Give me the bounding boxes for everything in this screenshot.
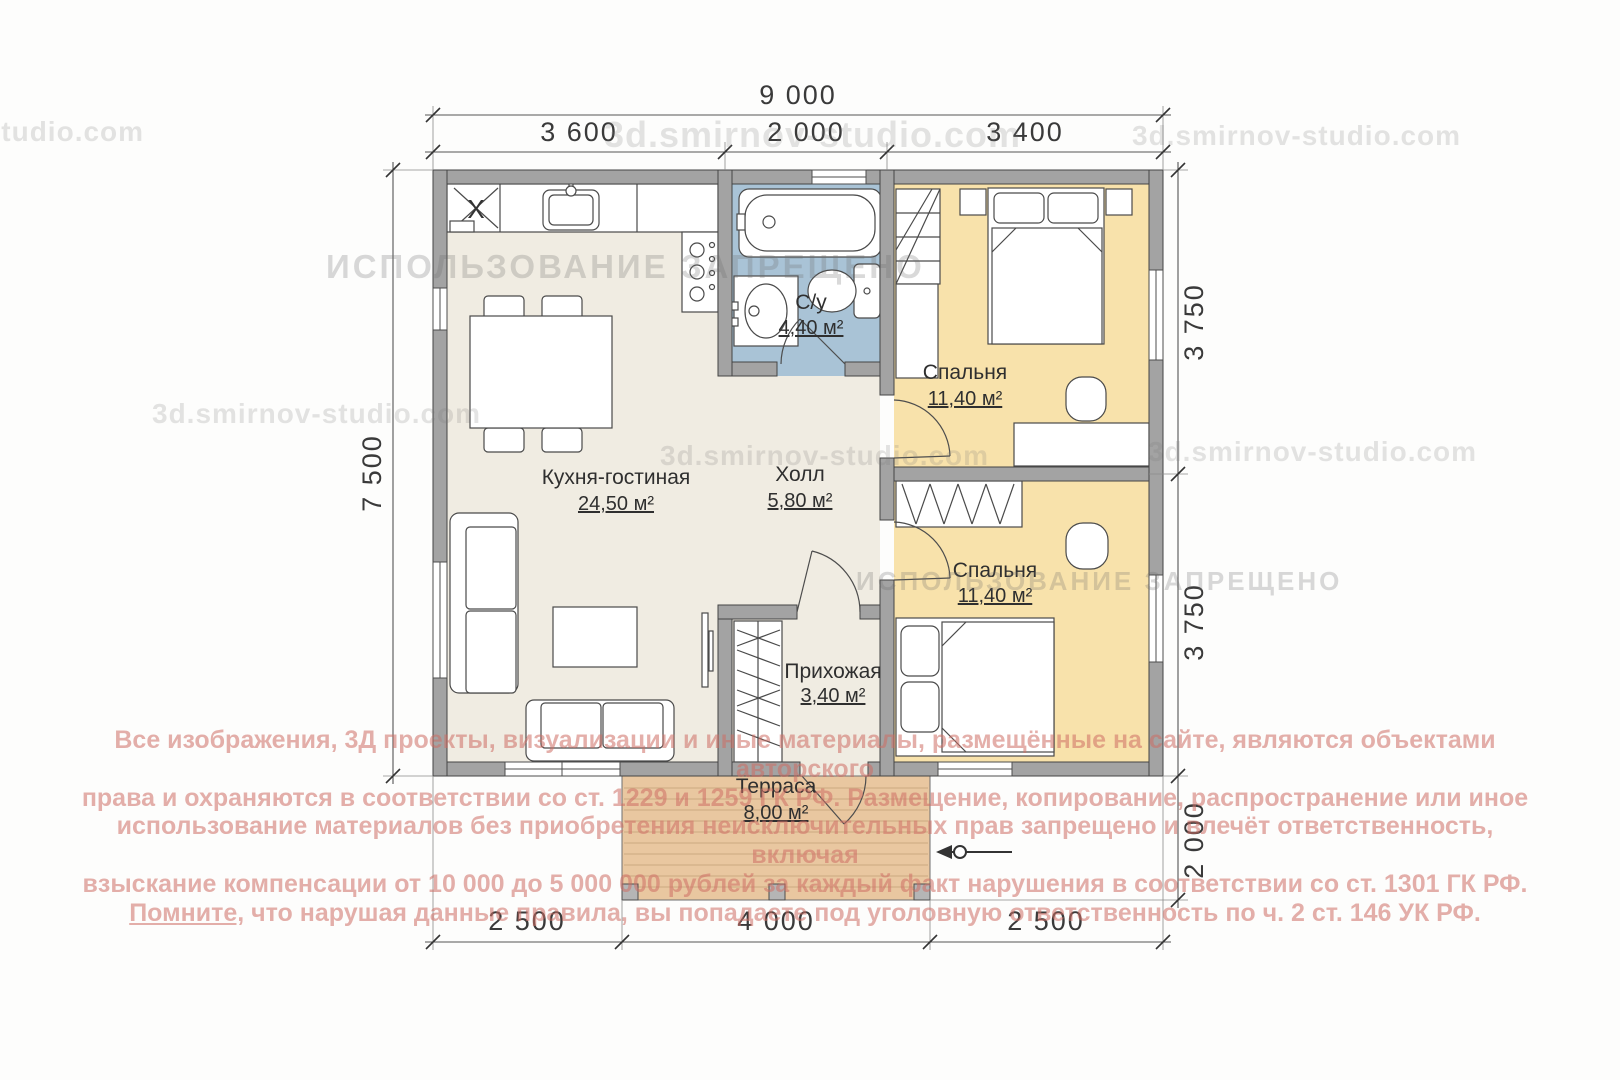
area-kitchen-living: 24,50 м²: [578, 493, 654, 515]
entrance-arrow: [936, 845, 1012, 859]
dim-left-total: 7 500: [357, 434, 387, 512]
kitchen-hob: [682, 232, 718, 312]
nightstand: [1106, 189, 1132, 215]
wall-bedrooms-b: [880, 458, 894, 520]
arrow-head-icon: [936, 845, 952, 859]
label-bedroom2: Спальня: [953, 559, 1037, 582]
wall-bedroom-separator: [894, 467, 1149, 481]
entry-wardrobe: [734, 621, 782, 762]
label-kitchen-living: Кухня-гостиная: [542, 466, 691, 489]
dim-bottom-seg1: 2 500: [488, 906, 566, 936]
bedroom1-wardrobe: [896, 189, 940, 284]
bedroom2-pouf: [1066, 523, 1108, 569]
label-hall: Холл: [775, 463, 825, 486]
area-bedroom1: 11,40 м²: [928, 388, 1003, 410]
wall-top: [433, 170, 1163, 184]
bedroom1-desk: [1014, 423, 1149, 466]
window-top-bathroom: [812, 170, 866, 184]
wall-bath-left: [718, 170, 732, 376]
dim-top-seg3: 3 400: [986, 117, 1064, 147]
sofa-bottom: [526, 700, 674, 761]
floor-plan-page: 9 000 3 600 2 000 3 400 7 500 3 750 3 75…: [0, 0, 1620, 1080]
window-bottom-bedroom2: [938, 762, 1012, 776]
wall-left: [433, 170, 447, 776]
dim-top-seg2: 2 000: [767, 117, 845, 147]
area-terrace: 8,00 м²: [744, 802, 809, 824]
floor-plan-drawing: 9 000 3 600 2 000 3 400 7 500 3 750 3 75…: [0, 0, 1620, 1080]
dim-right-seg2: 3 750: [1179, 583, 1209, 661]
window-right-bedroom2: [1149, 575, 1163, 662]
window-right-bedroom1: [1149, 270, 1163, 360]
wall-entry-left: [718, 605, 732, 776]
coffee-table: [553, 607, 637, 667]
wall-bath-bottom-right: [845, 362, 880, 376]
label-terrace: Терраса: [736, 775, 817, 798]
dim-bottom-seg2: 4 000: [737, 906, 815, 936]
label-entry: Прихожая: [784, 660, 881, 683]
nightstand: [960, 189, 986, 215]
dim-top-seg1: 3 600: [540, 117, 618, 147]
window-bottom-living: [505, 762, 620, 776]
bedroom1-pouf: [1066, 377, 1106, 421]
wall-right: [1149, 170, 1163, 776]
area-bathroom: 4,40 м²: [779, 317, 844, 339]
sofa-left: [450, 513, 518, 693]
label-bathroom: С/у: [795, 291, 827, 314]
wall-bedrooms-c: [880, 580, 894, 776]
bedroom2-bed: [896, 618, 1054, 756]
wall-entry-top-right: [860, 605, 880, 619]
wall-bedrooms-a: [880, 170, 894, 395]
dim-right-seg1: 3 750: [1179, 283, 1209, 361]
area-hall: 5,80 м²: [768, 490, 833, 512]
dim-bottom-seg3: 2 500: [1007, 906, 1085, 936]
window-left-1: [433, 288, 447, 330]
dim-top-total: 9 000: [759, 80, 837, 110]
wall-entry-top-left: [718, 605, 797, 619]
wall-bottom-right: [868, 762, 1163, 776]
kitchen-x-marker: X: [467, 194, 484, 224]
wall-bath-bottom-left: [732, 362, 777, 376]
dim-right-seg3: 2 000: [1179, 801, 1209, 879]
bathtub: [737, 189, 881, 257]
label-bedroom1: Спальня: [923, 361, 1007, 384]
area-entry: 3,40 м²: [801, 685, 866, 707]
area-bedroom2: 11,40 м²: [958, 585, 1033, 607]
window-left-2: [433, 562, 447, 678]
bedroom2-wardrobe: [896, 481, 1022, 527]
